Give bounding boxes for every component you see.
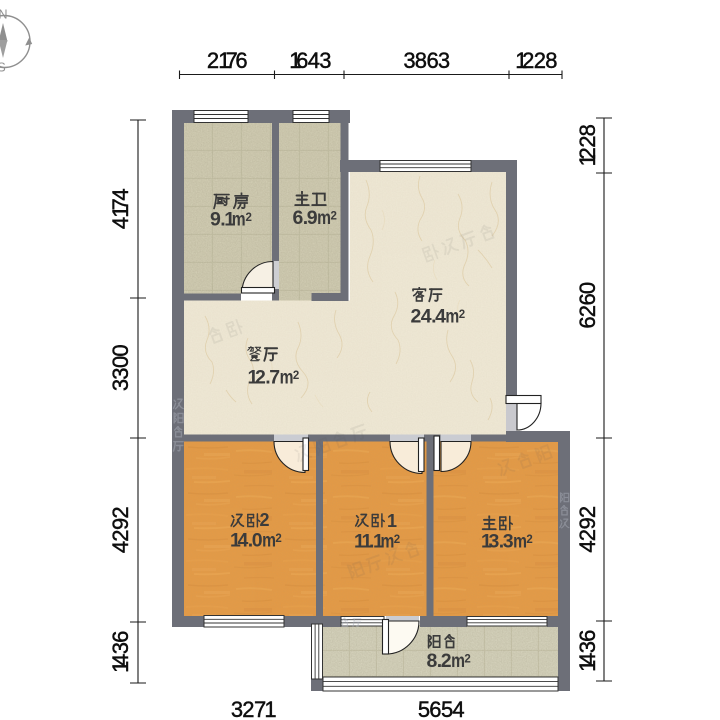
- svg-text:2: 2: [526, 534, 532, 546]
- svg-text:6.9: 6.9: [293, 207, 318, 229]
- svg-text:m: m: [280, 366, 294, 388]
- svg-text:2176: 2176: [207, 48, 248, 73]
- svg-text:8.2: 8.2: [427, 650, 452, 672]
- svg-text:S: S: [0, 61, 6, 75]
- svg-text:3300: 3300: [108, 344, 133, 391]
- svg-text:1: 1: [387, 511, 397, 531]
- svg-text:4292: 4292: [108, 506, 133, 553]
- svg-text:2: 2: [394, 534, 400, 546]
- svg-text:1436: 1436: [575, 630, 600, 672]
- svg-text:m: m: [445, 305, 459, 327]
- svg-text:2: 2: [331, 211, 337, 223]
- svg-text:m: m: [262, 529, 276, 551]
- svg-text:13.3: 13.3: [481, 531, 514, 553]
- svg-text:4292: 4292: [575, 506, 600, 553]
- svg-text:11.1: 11.1: [354, 531, 384, 553]
- svg-text:3863: 3863: [403, 48, 450, 73]
- svg-text:2: 2: [464, 654, 470, 666]
- svg-text:m: m: [232, 208, 246, 230]
- svg-text:1643: 1643: [289, 48, 331, 73]
- svg-text:24.4: 24.4: [411, 306, 447, 328]
- svg-text:m: m: [317, 206, 331, 228]
- svg-text:2: 2: [275, 533, 281, 545]
- svg-text:4174: 4174: [108, 188, 133, 229]
- svg-text:6260: 6260: [575, 282, 600, 329]
- svg-text:1228: 1228: [575, 124, 600, 166]
- svg-text:m: m: [381, 530, 395, 552]
- svg-text:2: 2: [293, 370, 299, 382]
- svg-text:N: N: [0, 8, 8, 22]
- svg-text:2: 2: [246, 212, 252, 224]
- svg-text:2: 2: [459, 309, 465, 321]
- svg-text:2: 2: [259, 510, 269, 530]
- svg-text:m: m: [451, 649, 465, 671]
- svg-text:14.0: 14.0: [230, 530, 263, 552]
- svg-text:1436: 1436: [108, 631, 133, 673]
- svg-text:12.7: 12.7: [248, 367, 281, 389]
- svg-text:1228: 1228: [515, 48, 557, 73]
- svg-text:m: m: [513, 530, 527, 552]
- svg-text:3271: 3271: [231, 697, 277, 720]
- svg-text:5654: 5654: [418, 697, 465, 720]
